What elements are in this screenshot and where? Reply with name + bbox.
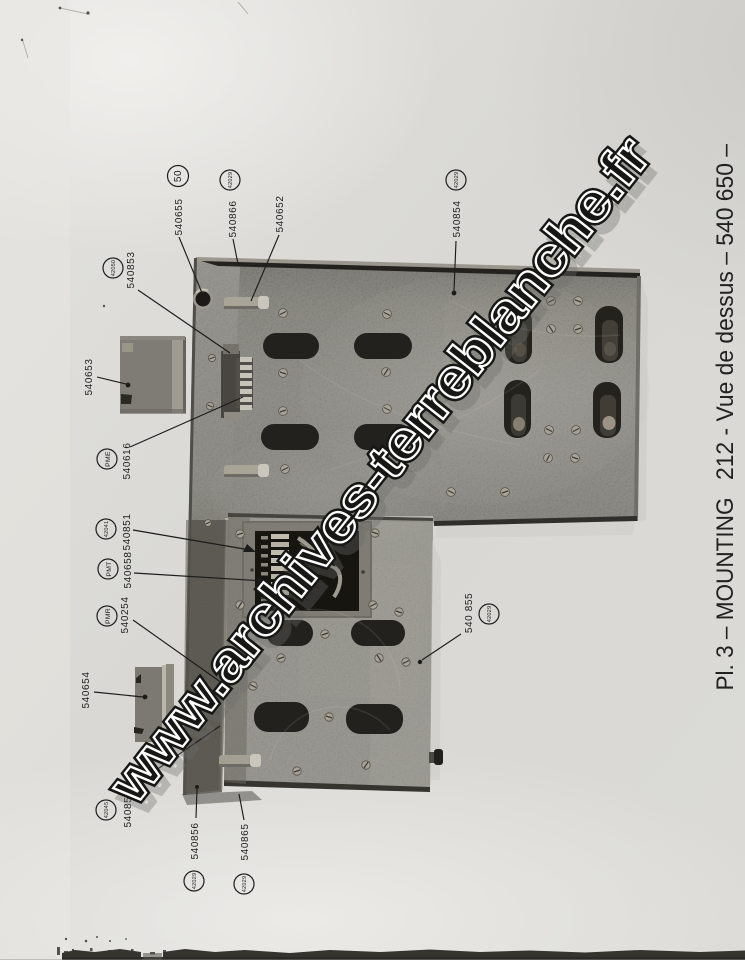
svg-text:212 - Vue de dessus – 540 650: 212 - Vue de dessus – 540 650 – bbox=[712, 143, 739, 480]
svg-text:540865: 540865 bbox=[240, 824, 251, 861]
svg-text:PMT: PMT bbox=[106, 561, 113, 576]
svg-text:PME: PME bbox=[105, 451, 112, 467]
svg-text:50: 50 bbox=[173, 170, 184, 182]
svg-text:540658: 540658 bbox=[123, 552, 134, 589]
svg-text:42050: 42050 bbox=[111, 260, 117, 277]
svg-text:540654: 540654 bbox=[81, 672, 92, 709]
svg-text:PMR: PMR bbox=[105, 608, 112, 624]
svg-text:540866: 540866 bbox=[228, 201, 239, 238]
svg-text:540652: 540652 bbox=[275, 196, 286, 233]
svg-text:42029: 42029 bbox=[454, 172, 460, 189]
svg-text:540655: 540655 bbox=[174, 199, 185, 236]
svg-text:42045: 42045 bbox=[104, 802, 110, 819]
svg-text:540856: 540856 bbox=[190, 823, 201, 860]
svg-text:540653: 540653 bbox=[84, 359, 95, 396]
svg-text:42029: 42029 bbox=[228, 172, 234, 189]
svg-text:540 855: 540 855 bbox=[464, 593, 475, 633]
svg-text:540254: 540254 bbox=[120, 597, 131, 634]
svg-text:540851: 540851 bbox=[122, 514, 133, 551]
svg-text:42029: 42029 bbox=[242, 876, 248, 893]
svg-text:Pl. 3 – MOUNTING: Pl. 3 – MOUNTING bbox=[712, 498, 739, 691]
svg-text:540616: 540616 bbox=[122, 443, 133, 480]
svg-text:540854: 540854 bbox=[452, 201, 463, 238]
svg-text:42029: 42029 bbox=[192, 873, 198, 890]
svg-text:540853: 540853 bbox=[126, 252, 137, 289]
svg-text:42041: 42041 bbox=[104, 521, 110, 538]
svg-text:42029: 42029 bbox=[487, 606, 493, 623]
